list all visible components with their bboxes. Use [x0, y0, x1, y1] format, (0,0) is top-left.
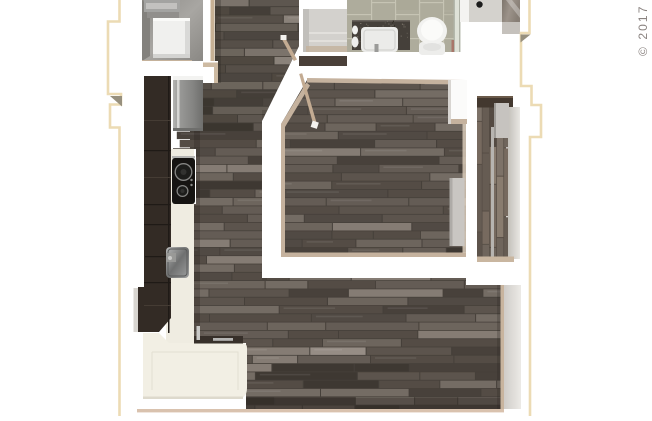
- svg-text:© 2017: © 2017: [636, 5, 650, 56]
